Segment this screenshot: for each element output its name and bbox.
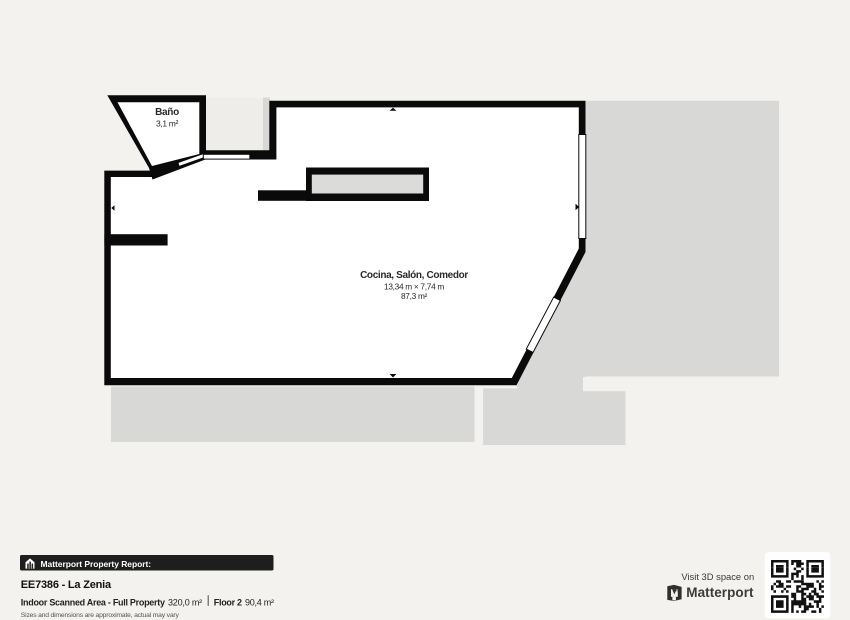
svg-text:Sizes and dimensions are appro: Sizes and dimensions are approximate, ac… <box>21 612 180 619</box>
svg-text:Visit 3D space on: Visit 3D space on <box>681 571 754 582</box>
svg-text:Baño: Baño <box>155 107 179 118</box>
svg-text:90,4 m²: 90,4 m² <box>245 598 274 608</box>
svg-text:87,3 m²: 87,3 m² <box>401 291 428 301</box>
svg-text:EE7386 - La Zenia: EE7386 - La Zenia <box>21 579 112 591</box>
svg-text:Floor 2: Floor 2 <box>214 598 242 608</box>
svg-text:Matterport: Matterport <box>686 585 754 600</box>
svg-text:Matterport Property Report:: Matterport Property Report: <box>41 559 152 569</box>
svg-text:Indoor Scanned Area - Full Pro: Indoor Scanned Area - Full Property <box>21 598 165 608</box>
svg-text:Cocina, Salón, Comedor: Cocina, Salón, Comedor <box>360 270 468 281</box>
svg-text:3,1 m²: 3,1 m² <box>156 119 179 129</box>
svg-text:13,34 m × 7,74 m: 13,34 m × 7,74 m <box>384 282 444 292</box>
svg-text:320,0 m²: 320,0 m² <box>168 598 202 608</box>
